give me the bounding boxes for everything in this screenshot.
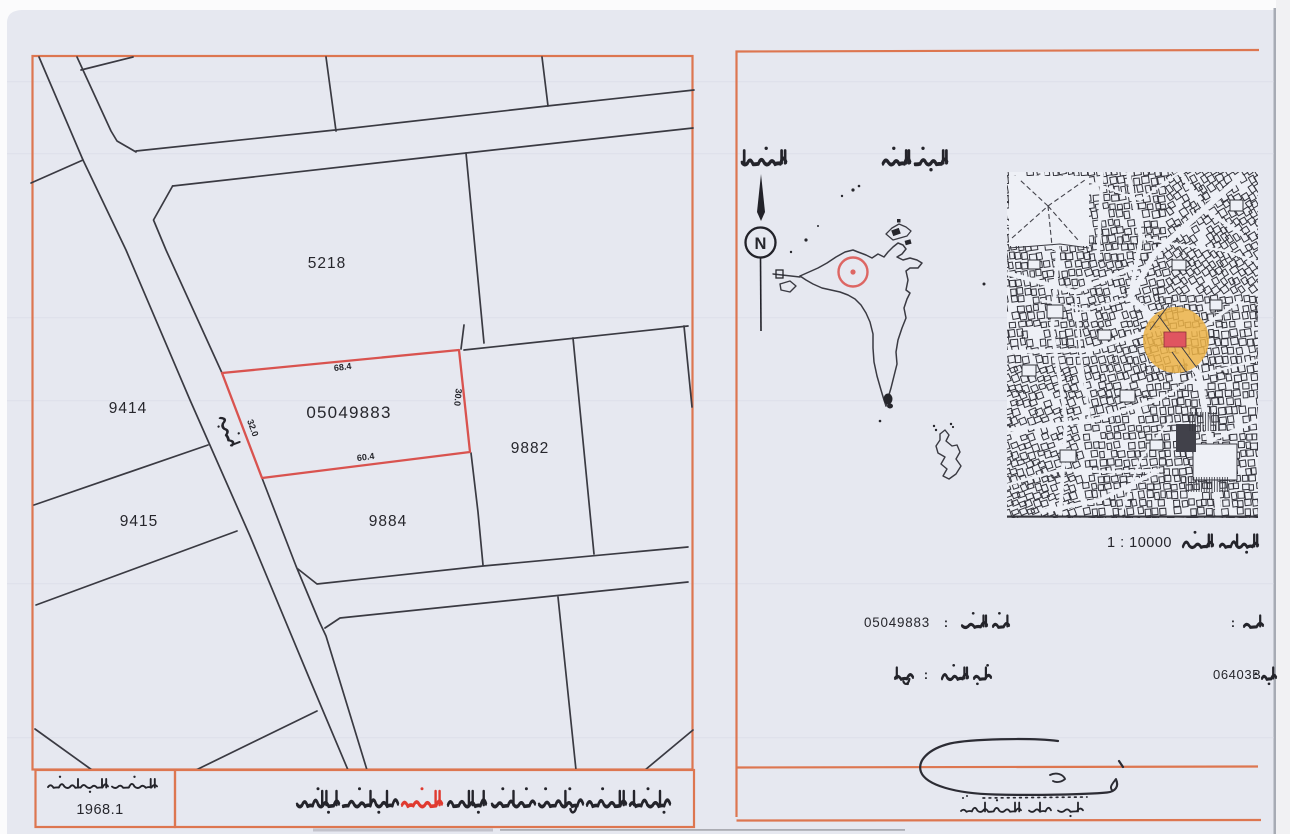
svg-text:N: N xyxy=(755,235,767,253)
svg-text:9884: 9884 xyxy=(369,513,407,530)
svg-text::: : xyxy=(1231,616,1235,630)
svg-text:9415: 9415 xyxy=(120,513,158,530)
svg-text::: : xyxy=(924,668,928,682)
svg-text:9882: 9882 xyxy=(511,440,549,457)
svg-text::: : xyxy=(1254,668,1258,682)
svg-text:05049883: 05049883 xyxy=(306,403,391,422)
svg-text:68.4: 68.4 xyxy=(333,361,352,373)
svg-text:1 : 10000: 1 : 10000 xyxy=(1107,535,1172,551)
svg-text:1968.1: 1968.1 xyxy=(76,802,123,818)
svg-text:05049883: 05049883 xyxy=(864,615,930,630)
svg-text:5218: 5218 xyxy=(308,255,346,272)
svg-text:9414: 9414 xyxy=(109,400,147,417)
svg-text:60.4: 60.4 xyxy=(356,451,375,463)
svg-text:30.0: 30.0 xyxy=(452,388,464,406)
svg-text::: : xyxy=(944,616,948,630)
